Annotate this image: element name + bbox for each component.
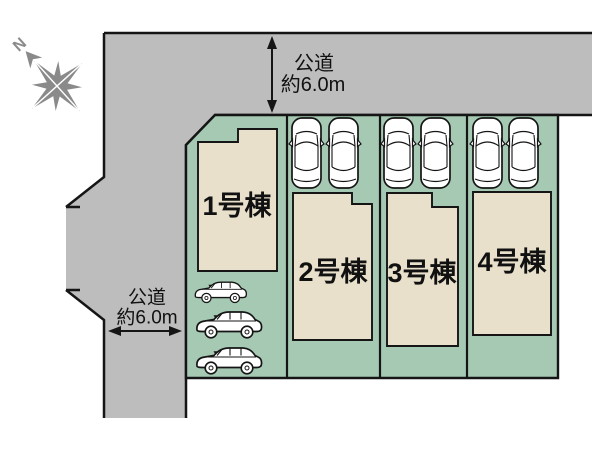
car-icon: [326, 118, 361, 188]
road-left-name: 公道: [128, 287, 166, 309]
car-icon: [470, 118, 505, 188]
car-icon: [418, 118, 453, 188]
building-4-label: 4号棟: [477, 247, 547, 277]
building-1-label: 1号棟: [202, 191, 272, 221]
road-top-width: 約6.0m: [281, 73, 345, 96]
site-plan: 1号棟 2号棟 3号棟 4号棟 公道 約6.0m 公道 約6.0m: [0, 0, 600, 450]
road-top-name: 公道: [294, 52, 334, 75]
building-2-label: 2号棟: [298, 257, 368, 287]
car-icon: [289, 118, 324, 188]
car-icon: [506, 118, 541, 188]
building-3-label: 3号棟: [387, 258, 457, 288]
site-plan-svg: 1号棟 2号棟 3号棟 4号棟 公道 約6.0m 公道 約6.0m: [0, 0, 600, 450]
road-left-width: 約6.0m: [116, 307, 177, 329]
car-icon: [381, 118, 416, 188]
